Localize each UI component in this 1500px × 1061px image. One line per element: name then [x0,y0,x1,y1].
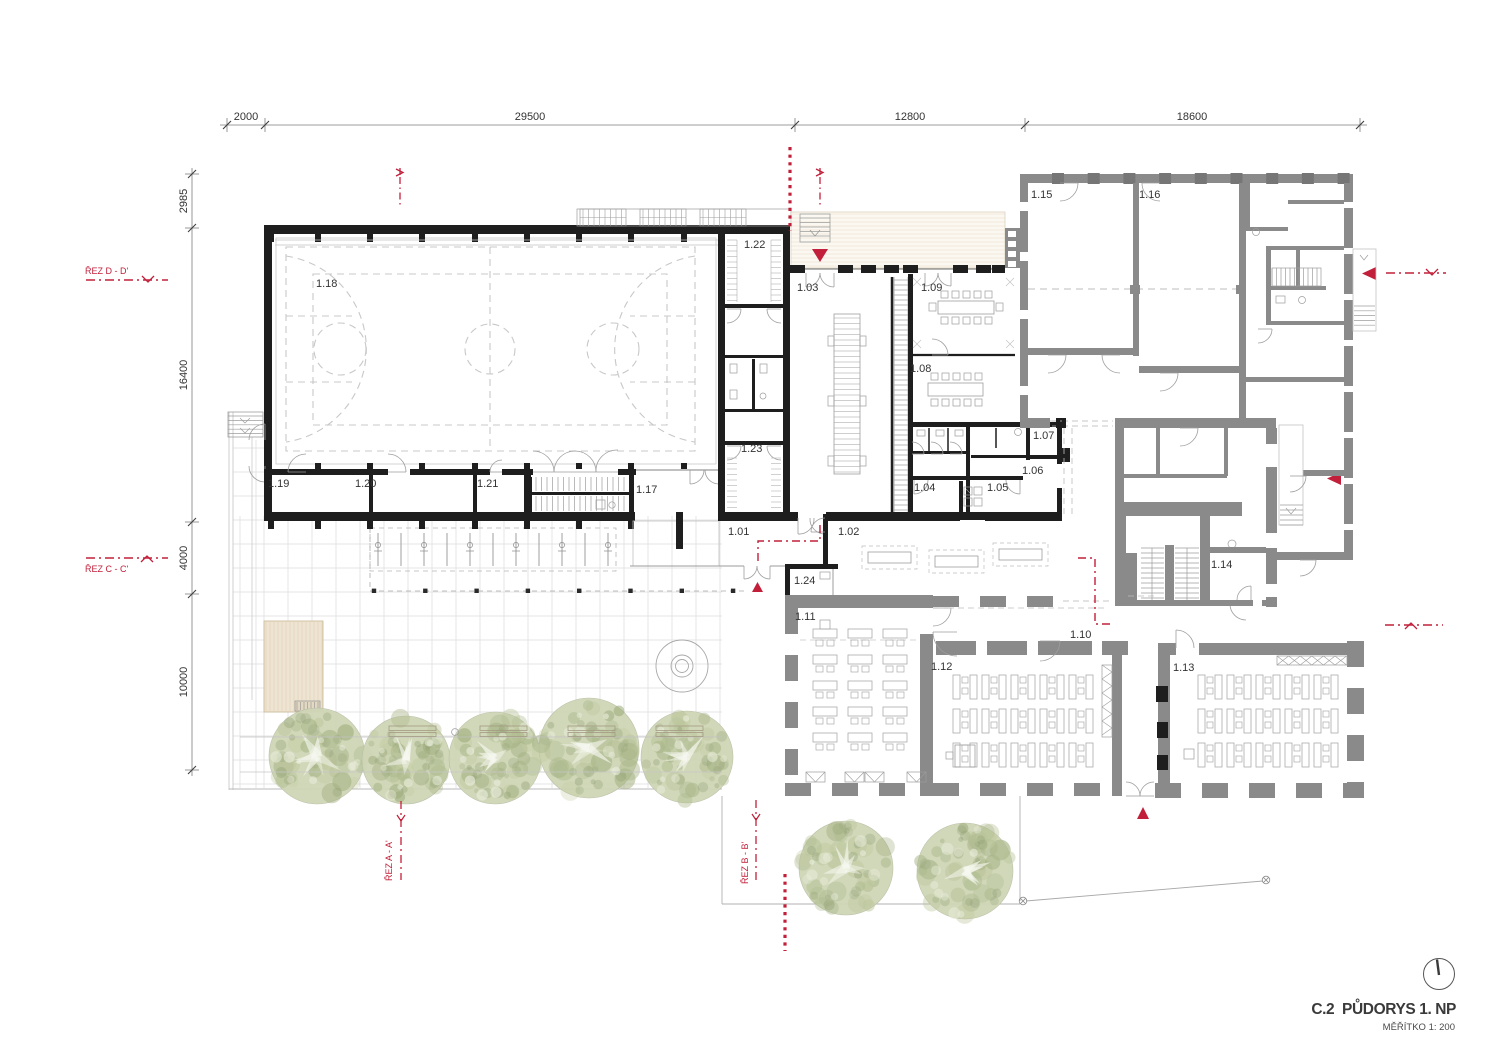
svg-text:18600: 18600 [1177,111,1208,123]
svg-text:1.14: 1.14 [1211,559,1232,571]
svg-text:ŘEZ A - A': ŘEZ A - A' [384,840,394,881]
svg-text:1.12: 1.12 [931,661,952,673]
svg-text:12800: 12800 [895,111,926,123]
svg-text:MĚŘÍTKO 1: 200: MĚŘÍTKO 1: 200 [1383,1022,1455,1033]
svg-text:C.2 PŮDORYS 1. NP: C.2 PŮDORYS 1. NP [1311,999,1456,1018]
svg-text:1.19: 1.19 [268,478,289,490]
svg-text:1.21: 1.21 [477,478,498,490]
svg-text:1.22: 1.22 [744,239,765,251]
svg-text:1.02: 1.02 [838,526,859,538]
svg-text:1.07: 1.07 [1033,430,1054,442]
svg-text:1.15: 1.15 [1031,189,1052,201]
svg-text:1.17: 1.17 [636,484,657,496]
svg-text:1.13: 1.13 [1173,662,1194,674]
svg-text:ŘEZ B - B': ŘEZ B - B' [740,841,750,884]
svg-text:1.04: 1.04 [914,482,935,494]
svg-text:1.11: 1.11 [795,611,816,623]
svg-text:1.23: 1.23 [741,443,762,455]
svg-text:1.24: 1.24 [794,575,815,587]
svg-text:4000: 4000 [178,546,190,570]
svg-text:1.09: 1.09 [921,282,942,294]
svg-text:1.16: 1.16 [1139,189,1160,201]
svg-text:1.08: 1.08 [910,363,931,375]
svg-text:1.01: 1.01 [728,526,749,538]
svg-text:1.06: 1.06 [1022,465,1043,477]
svg-text:ŘEZ D - D': ŘEZ D - D' [85,266,128,276]
svg-text:16400: 16400 [178,360,190,391]
svg-text:1.05: 1.05 [987,482,1008,494]
svg-text:1.10: 1.10 [1070,629,1091,641]
svg-text:2000: 2000 [234,111,258,123]
svg-text:10000: 10000 [178,667,190,698]
svg-text:2985: 2985 [178,189,190,213]
svg-text:29500: 29500 [515,111,546,123]
svg-text:1.03: 1.03 [797,282,818,294]
svg-text:ŘEZ C - C': ŘEZ C - C' [85,564,128,574]
svg-text:1.18: 1.18 [316,278,337,290]
svg-text:1.20: 1.20 [355,478,376,490]
